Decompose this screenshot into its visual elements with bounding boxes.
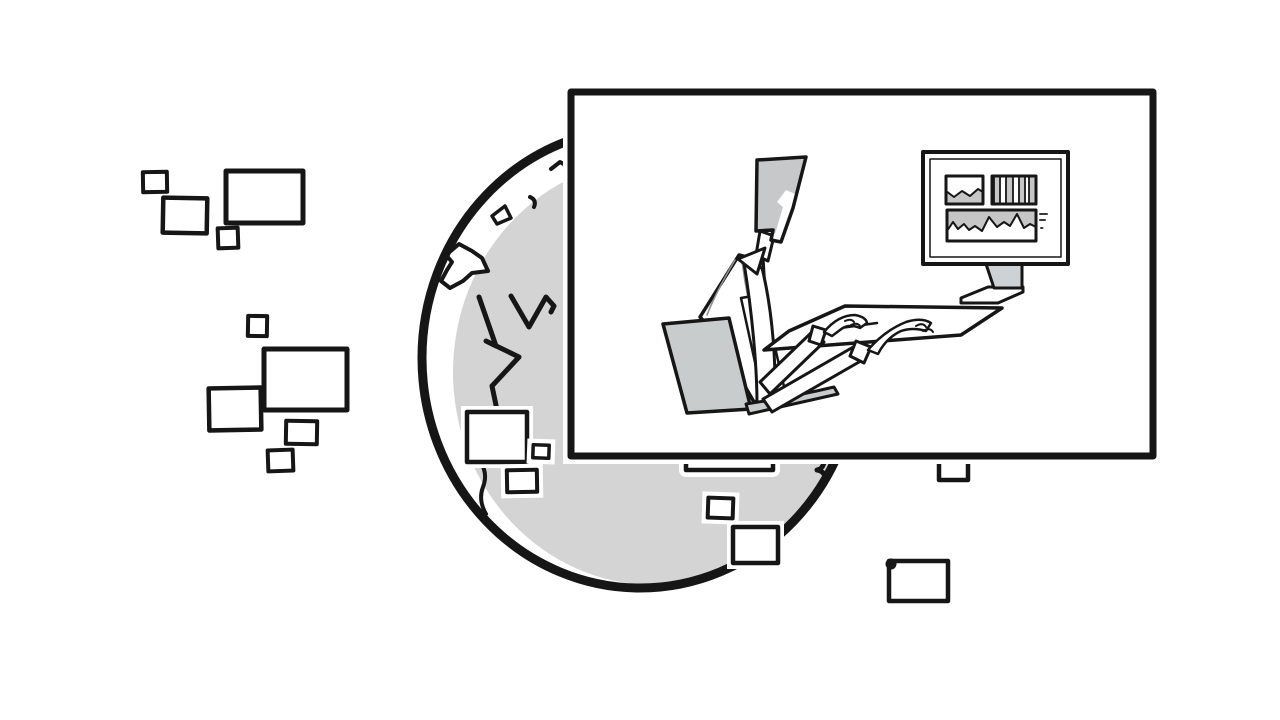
panel-frame: [571, 92, 1153, 456]
floating-screen: [727, 521, 784, 569]
monitor-stand: [986, 264, 1022, 288]
inset-panel: [563, 84, 1161, 464]
floating-screen: [163, 198, 208, 234]
floating-screen: [286, 421, 317, 445]
floating-screen: [889, 561, 948, 601]
illustration-stage: [0, 0, 1280, 720]
floating-screen: [527, 439, 556, 465]
floating-screen: [264, 349, 347, 410]
bar: [1006, 177, 1013, 203]
floating-screen: [209, 388, 262, 431]
illustration-canvas: [0, 0, 1280, 720]
floating-screen: [248, 316, 267, 336]
floating-screen: [268, 450, 294, 472]
floating-screen: [501, 464, 544, 499]
screen-corner-blob: [886, 559, 897, 570]
cuff-1: [809, 326, 826, 345]
monitor-frame: [923, 152, 1068, 264]
floating-screen: [226, 171, 303, 223]
floating-screen: [701, 491, 739, 524]
floating-screen: [143, 172, 167, 192]
floating-screen: [218, 228, 239, 249]
floating-screen: [461, 406, 533, 468]
